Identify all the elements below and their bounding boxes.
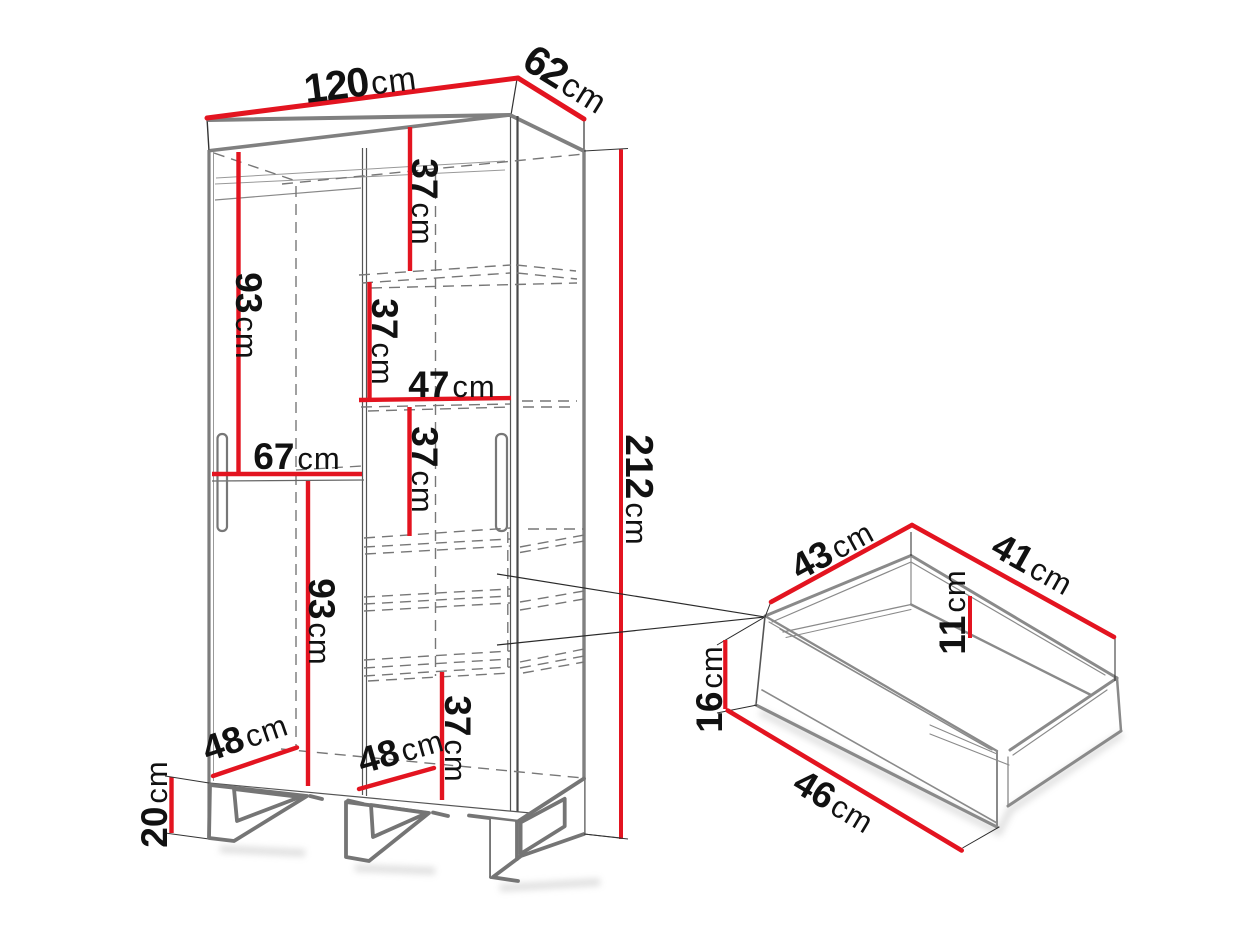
- svg-text:37cm: 37cm: [404, 426, 445, 513]
- svg-text:47cm: 47cm: [408, 364, 495, 405]
- svg-text:93cm: 93cm: [301, 578, 342, 665]
- svg-text:20cm: 20cm: [134, 760, 175, 847]
- svg-text:37cm: 37cm: [364, 298, 405, 385]
- svg-text:37cm: 37cm: [437, 695, 478, 782]
- svg-text:212cm: 212cm: [617, 434, 660, 545]
- svg-text:93cm: 93cm: [228, 272, 269, 359]
- svg-text:11cm: 11cm: [932, 569, 973, 654]
- svg-text:16cm: 16cm: [689, 645, 730, 732]
- svg-text:37cm: 37cm: [404, 158, 445, 245]
- svg-text:67cm: 67cm: [253, 436, 340, 477]
